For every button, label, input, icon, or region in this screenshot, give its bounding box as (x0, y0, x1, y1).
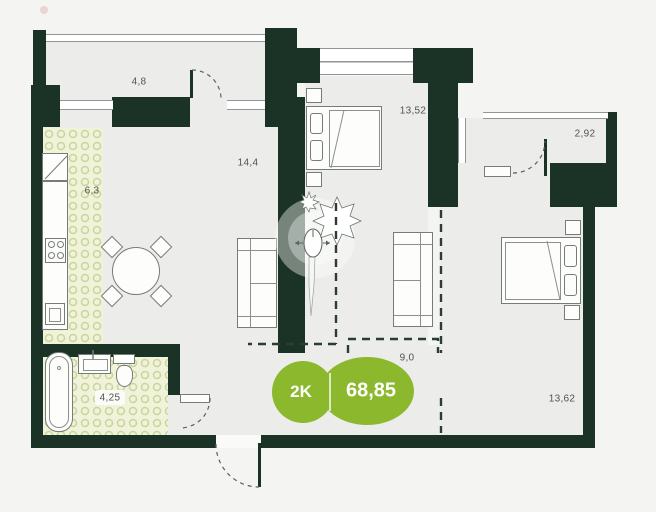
room-area-label-bathroom: 4,25 (100, 393, 121, 404)
badge-total-area: 68,85 (346, 380, 396, 403)
room-area-label-living: 14,4 (238, 158, 259, 169)
badge-rooms-count: 2K (290, 382, 312, 402)
dashed-wardrobe (348, 339, 438, 353)
bed-fold-line (331, 110, 344, 168)
bed-fold-line (547, 241, 560, 300)
badge-divider (329, 373, 331, 411)
door-arc (180, 398, 210, 428)
plan-linework (0, 0, 656, 512)
watermark-logo (275, 192, 361, 316)
room-area-label-balcony-top: 4,8 (132, 77, 147, 88)
door-arc (192, 70, 221, 98)
room-area-label-hallway: 9,0 (400, 353, 415, 364)
room-area-label-bedroom-1: 13,52 (400, 106, 427, 117)
room-area-label-bedroom-2: 13,62 (549, 394, 576, 405)
room-area-label-kitchen: 6,3 (85, 186, 100, 197)
floor-plan: 4,8 6,3 14,4 13,52 2,92 9,0 13,62 4,25 2… (0, 0, 656, 512)
door-arc (513, 141, 545, 173)
plant-stem (309, 257, 315, 316)
plant-icon (299, 192, 319, 212)
door-arc (216, 444, 259, 487)
room-area-label-balcony-right: 2,92 (575, 129, 596, 140)
fridge-diagonal (45, 156, 67, 179)
artifact-dot (40, 6, 48, 14)
